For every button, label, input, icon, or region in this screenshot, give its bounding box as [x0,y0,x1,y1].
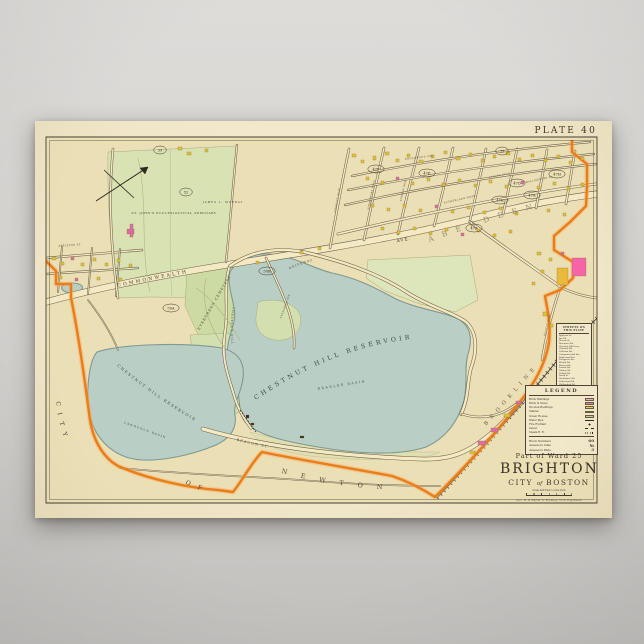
building [419,160,423,163]
block-number: 50B [263,269,271,273]
building [246,415,249,418]
building [361,160,364,163]
building [435,205,438,208]
block-number: 47E [423,171,431,175]
block-number: 47H [553,172,561,176]
building [385,152,389,155]
divider [559,333,589,334]
ward-label: Part of Ward 25 [500,452,598,460]
scale-bar [526,493,572,496]
building [451,210,454,213]
building [178,147,182,150]
streets-index-box: STREETS ON THIS PLATE Appleton St.Ayr Rd… [556,323,592,389]
legend-footer: Block Numbers60Assessors Atlas№Assessors… [529,436,594,452]
building [129,264,132,267]
building [505,185,508,188]
building [553,182,556,185]
legend-title: LEGEND [529,388,594,396]
building [581,183,584,186]
building [521,181,524,184]
building [413,227,416,230]
legend-swatch-dash [585,428,594,430]
building [411,182,414,185]
building [509,230,512,233]
building [397,231,400,234]
map-subtitle: CITY of BOSTON [500,478,598,487]
building [557,268,568,285]
building [75,278,78,281]
subtitle-city: CITY [508,478,533,487]
building [493,155,496,158]
publisher-imprint: Geo. W. & Walter S. Bromley, Civil Engin… [500,499,598,502]
building [541,270,544,273]
building [537,186,540,189]
building [381,227,384,230]
building [105,263,108,266]
building [572,258,586,276]
building [491,428,498,432]
streets-index-list: Appleton St.Ayr Rd.Beacon St.Braemore Rd… [559,335,589,386]
building [300,436,304,438]
block-number: 47A [528,193,536,197]
building [544,159,547,162]
building [256,261,259,264]
building [467,206,470,209]
block-number: 47F [372,167,380,171]
building [61,262,64,265]
building [504,414,510,417]
building [470,451,475,454]
building [352,154,356,157]
building [499,207,502,210]
building [550,324,553,327]
building [518,158,521,161]
building [52,257,56,260]
legend-swatch-fill [585,402,594,405]
subtitle-boston: BOSTON [546,478,590,487]
building [419,209,422,212]
building [456,157,460,160]
building [373,156,376,160]
block-number: 47D [513,181,521,185]
building [469,153,472,156]
building [205,149,208,152]
streets-index-title-2: THIS PLATE [559,329,589,332]
building [549,258,552,261]
building [130,224,133,237]
building [97,277,100,280]
building [567,187,570,190]
building [569,161,572,164]
block-number: 39 [158,148,163,152]
building [547,209,550,212]
legend-swatch-rail [585,432,594,434]
building [93,258,96,261]
building [366,177,369,180]
legend-swatch-fill [585,398,594,401]
subtitle-of: of [537,481,542,487]
building [489,180,492,183]
block-number: 52 [184,190,189,194]
building [483,211,486,214]
building [427,178,430,181]
map-label: ST. JOHN'S ECCLESIASTICAL SEMINARY [131,211,216,215]
building [557,155,560,158]
legend-swatch-line [585,420,594,422]
map-svg: 39395250A50B47F47E47D47H47A47K47BAVE.ST.… [0,0,644,644]
building [563,213,566,216]
building [371,204,374,207]
building [532,282,535,285]
building [531,154,534,157]
building [300,251,303,254]
block-number: 47K [496,198,504,202]
legend-swatch-fill [585,415,594,418]
building [396,177,399,180]
building [187,152,191,155]
building [474,184,477,187]
building [481,159,484,162]
building [81,263,84,266]
building [493,234,496,237]
legend-row: Steam R. R. [529,431,594,435]
building [381,181,384,184]
scale-text: Scale 400 Feet to One Inch [500,489,598,492]
title-block: Part of Ward 25 BRIGHTON CITY of BOSTON … [500,452,598,502]
legend-rows: Brick BuildingsBrick & StoneWooden Build… [529,398,594,435]
block-number: 39 [500,149,505,153]
building [119,278,122,281]
building [543,312,547,316]
building [387,208,390,211]
building [117,259,120,262]
building [444,151,447,154]
photo-background: { "poster": { "plate_label": "PLATE 40",… [0,0,644,644]
building [458,179,461,182]
building [442,183,445,186]
legend-swatch-fill [585,411,594,414]
building [516,401,521,404]
building [251,423,254,425]
building [318,247,321,250]
building [71,257,74,260]
building [581,157,584,160]
building [59,276,62,279]
building [478,441,486,445]
building [461,233,464,236]
plate-label: PLATE 40 [534,126,597,136]
legend-swatch-fill [585,406,594,409]
building [396,159,399,162]
map-label: JAMES L. MURRAY [202,200,244,204]
building [403,204,406,207]
map-title: BRIGHTON [500,461,598,477]
block-number: 50A [167,306,175,310]
legend-box: LEGEND Brick BuildingsBrick & StoneWoode… [525,385,598,455]
building [537,252,541,255]
legend-swatch-dot [585,423,594,426]
building [561,252,564,255]
